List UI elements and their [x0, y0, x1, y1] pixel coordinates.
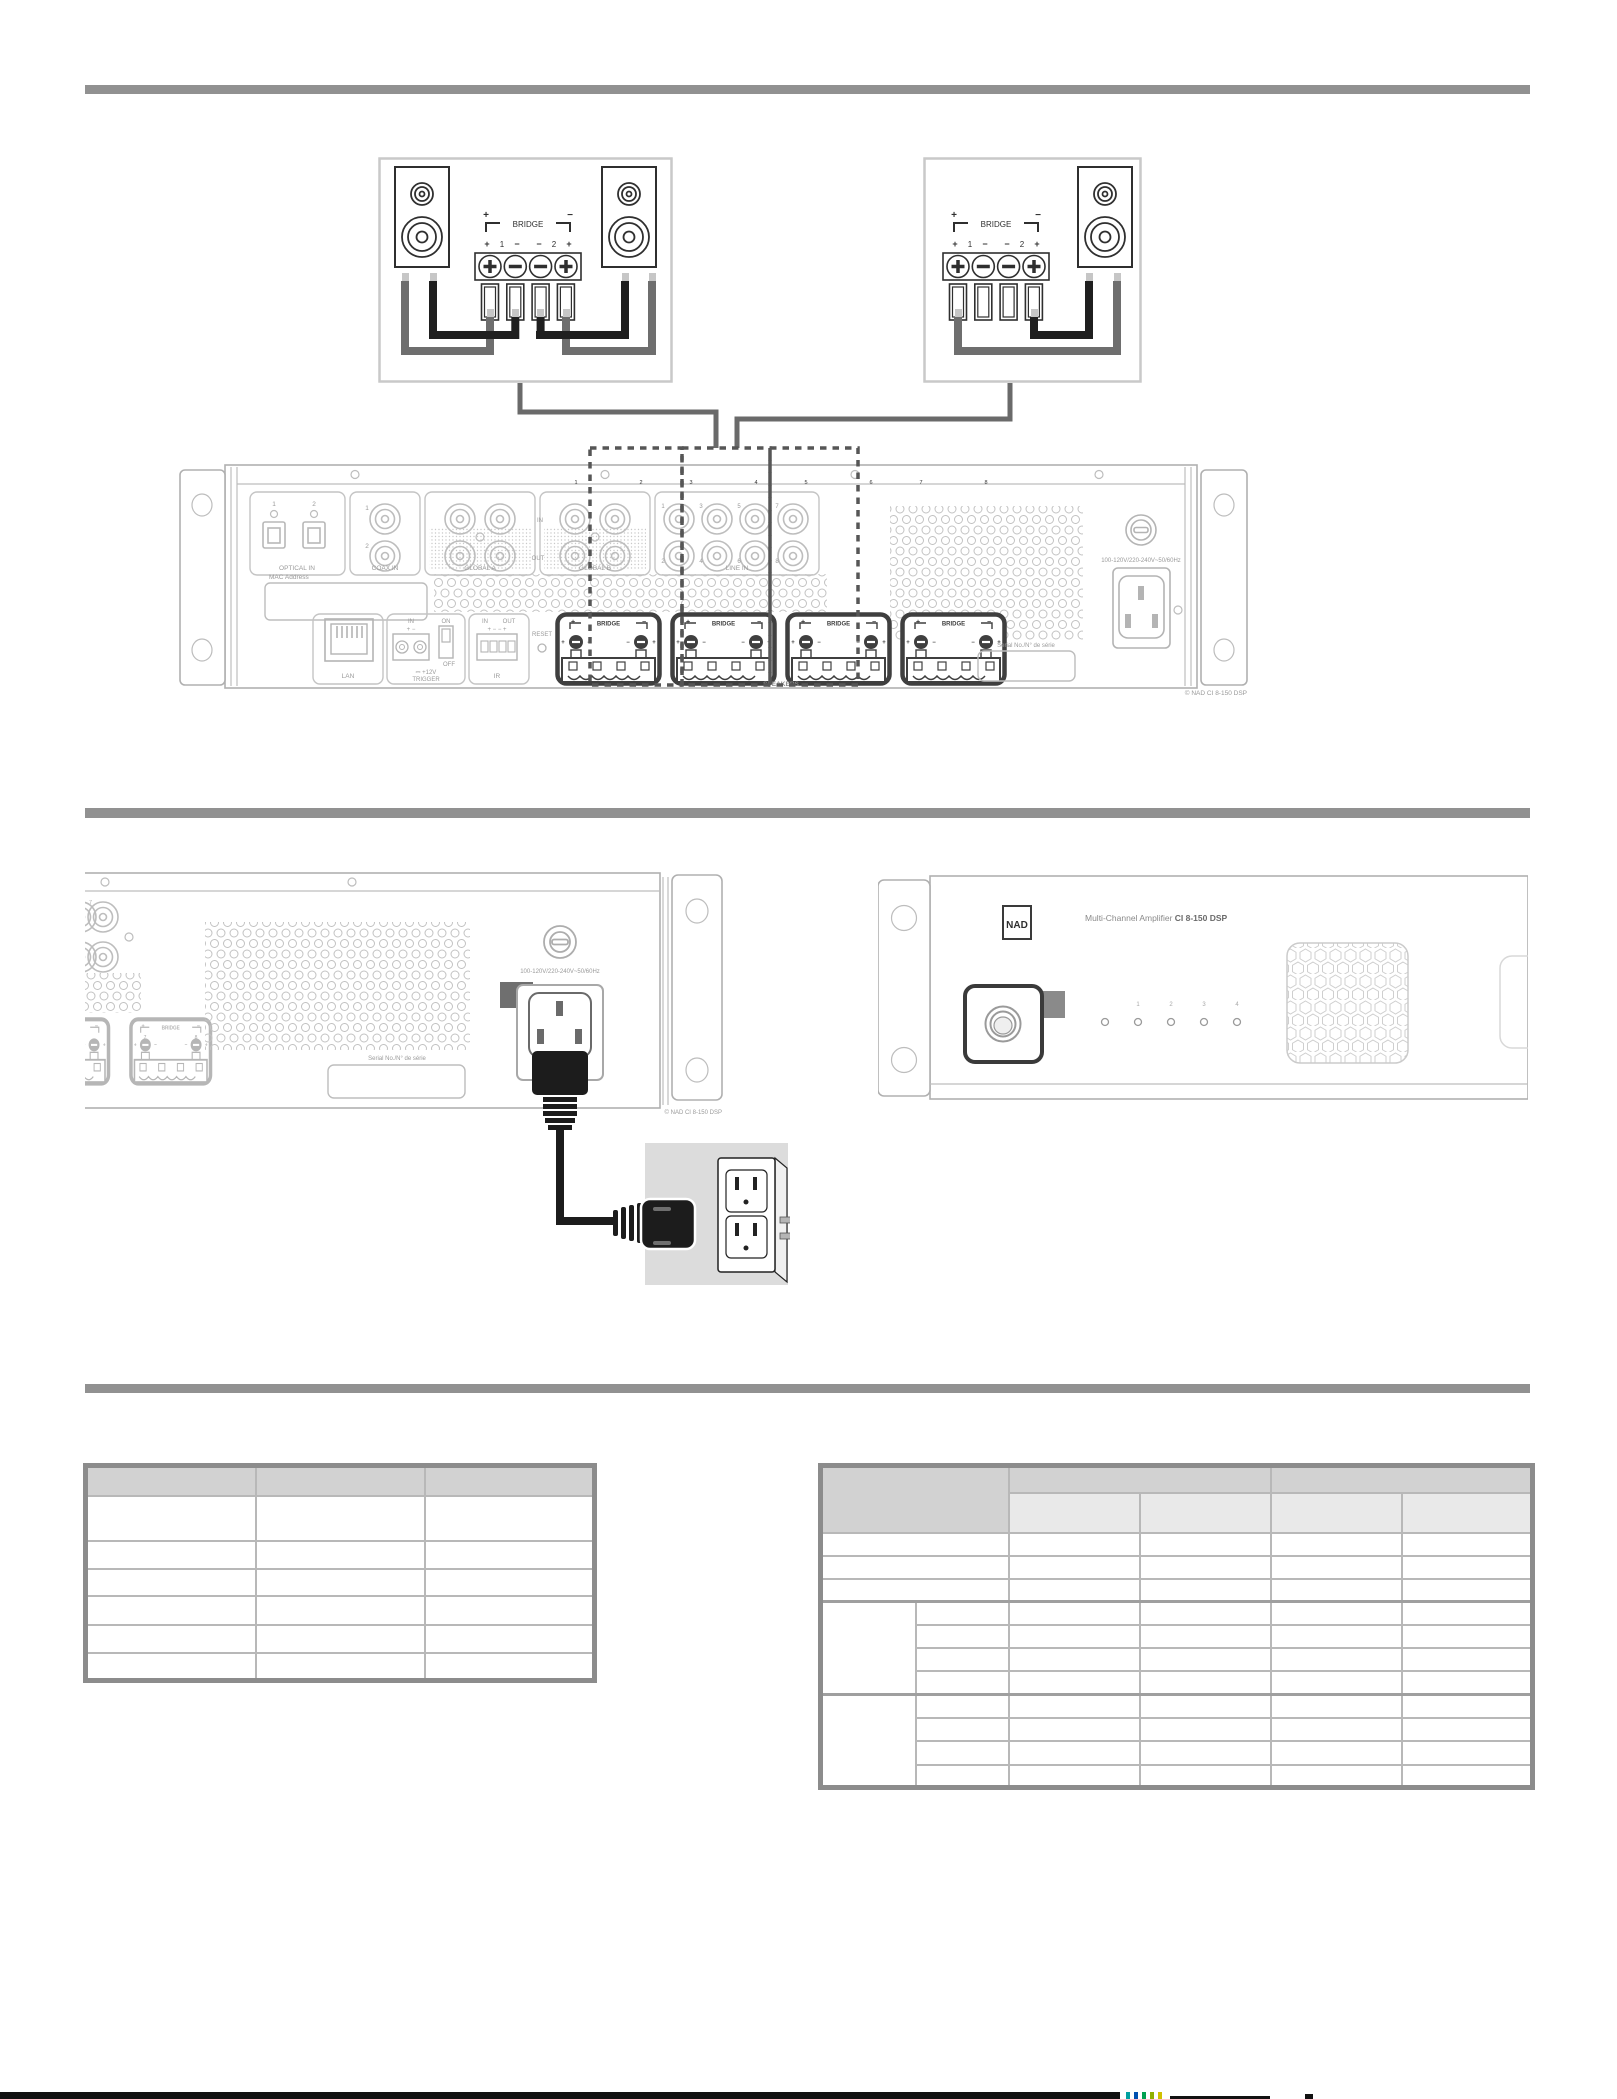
- empty-cell: [916, 1765, 1009, 1788]
- lan-label: LAN: [342, 673, 355, 680]
- power-plug-body: [532, 1051, 588, 1095]
- empty-cell: [1009, 1579, 1140, 1602]
- optical-1-label: 1: [272, 501, 276, 508]
- empty-cell: [1009, 1602, 1140, 1625]
- empty-cell: [916, 1671, 1009, 1695]
- speaker-icon: [602, 167, 656, 267]
- empty-cell: [1271, 1579, 1402, 1602]
- section-divider-bar: [85, 85, 1530, 94]
- empty-cell: [1271, 1466, 1533, 1493]
- empty-cell: [425, 1496, 595, 1541]
- empty-cell: [1271, 1602, 1402, 1625]
- bridge-panel-one-speaker: [923, 157, 1142, 383]
- empty-cell: [86, 1541, 256, 1569]
- power-cord: [556, 1128, 564, 1223]
- manual-page: + − BRIDGE + 1 − − 2 + + −: [0, 0, 1617, 2099]
- empty-cell: [1402, 1556, 1533, 1579]
- print-registration-mark: [1126, 2092, 1130, 2099]
- channel-number: 7: [144, 1035, 147, 1041]
- empty-cell: [1009, 1648, 1140, 1671]
- empty-cell: [86, 1625, 256, 1653]
- empty-cell: [1140, 1765, 1271, 1788]
- bridge-connection-overlay: [440, 375, 1160, 690]
- empty-cell: [1009, 1556, 1140, 1579]
- empty-cell: [916, 1695, 1009, 1718]
- empty-cell: [1140, 1625, 1271, 1648]
- empty-cell: [1140, 1718, 1271, 1741]
- empty-cell: [916, 1602, 1009, 1625]
- section-divider-bar: [85, 808, 1530, 818]
- empty-cell: [1140, 1493, 1271, 1533]
- trigger-in-label: IN: [408, 619, 414, 625]
- empty-cell: [821, 1602, 916, 1695]
- empty-cell: [1140, 1648, 1271, 1671]
- print-registration-mark: [1305, 2094, 1313, 2099]
- empty-cell: [1009, 1493, 1140, 1533]
- empty-cell: [1140, 1602, 1271, 1625]
- empty-cell: [1140, 1741, 1271, 1765]
- empty-cell: [1402, 1671, 1533, 1695]
- trigger-label-2: TRIGGER: [412, 677, 440, 683]
- empty-cell: [86, 1496, 256, 1541]
- coax-2-label: 2: [365, 543, 369, 550]
- empty-cell: [1402, 1579, 1533, 1602]
- empty-cell: [86, 1569, 256, 1596]
- wall-outlet: [613, 1143, 790, 1285]
- nad-logo-text: NAD: [1006, 920, 1028, 931]
- empty-cell: [425, 1596, 595, 1625]
- empty-cell: [916, 1648, 1009, 1671]
- trigger-label-1: ⎓ +12V: [416, 670, 437, 676]
- empty-cell: [1402, 1493, 1533, 1533]
- empty-cell: [1009, 1671, 1140, 1695]
- empty-cell: [1140, 1695, 1271, 1718]
- front-panel-diagram: NAD Multi-Channel Amplifier CI 8-150 DSP…: [878, 870, 1528, 1105]
- connection-wire-left: [520, 383, 716, 448]
- empty-cell: [1009, 1695, 1140, 1718]
- copyright-text: © NAD CI 8-150 DSP: [1185, 689, 1247, 697]
- print-registration-mark: [1158, 2092, 1162, 2099]
- power-cord: [556, 1217, 616, 1225]
- empty-cell: [1140, 1671, 1271, 1695]
- spec-table-left: [83, 1463, 597, 1683]
- empty-cell: [1271, 1493, 1402, 1533]
- empty-cell: [916, 1718, 1009, 1741]
- empty-cell: [916, 1625, 1009, 1648]
- empty-cell: [1271, 1556, 1402, 1579]
- speaker-icon: [395, 167, 449, 267]
- empty-cell: [1009, 1765, 1140, 1788]
- empty-cell: [256, 1596, 425, 1625]
- bridge-panel-two-speakers: [378, 157, 673, 383]
- empty-cell: [916, 1741, 1009, 1765]
- empty-cell: [86, 1653, 256, 1681]
- empty-cell: [1009, 1718, 1140, 1741]
- highlight-dashed-boxes: [590, 448, 858, 685]
- empty-cell: [1271, 1671, 1402, 1695]
- print-registration-mark: [1150, 2092, 1154, 2099]
- empty-cell: [256, 1653, 425, 1681]
- empty-cell: [1402, 1695, 1533, 1718]
- empty-cell: [256, 1625, 425, 1653]
- speaker-grille: [1287, 943, 1408, 1063]
- empty-cell: [821, 1533, 1009, 1556]
- empty-cell: [821, 1556, 1009, 1579]
- coax-in-label: COAX IN: [372, 565, 399, 572]
- spec-table-right: [818, 1463, 1535, 1790]
- empty-cell: [1271, 1741, 1402, 1765]
- empty-cell: [256, 1496, 425, 1541]
- empty-cell: [86, 1466, 256, 1496]
- empty-cell: [1140, 1533, 1271, 1556]
- vent-holes: [85, 973, 141, 1013]
- empty-cell: [256, 1466, 425, 1496]
- print-edge-bar: [0, 2092, 1120, 2099]
- empty-cell: [1009, 1466, 1271, 1493]
- power-connection-diagram: 7 7 8 Serial No./N° de série 100-120V/22…: [85, 865, 790, 1295]
- optical-2-label: 2: [312, 501, 316, 508]
- vent-holes: [205, 922, 470, 1050]
- empty-cell: [1271, 1625, 1402, 1648]
- optical-in-label: OPTICAL IN: [279, 565, 315, 572]
- empty-cell: [1009, 1625, 1140, 1648]
- section-divider-bar: [85, 1384, 1530, 1393]
- empty-cell: [1271, 1533, 1402, 1556]
- empty-cell: [425, 1625, 595, 1653]
- speaker-icon: [1078, 167, 1132, 267]
- empty-cell: [1402, 1741, 1533, 1765]
- print-registration-mark: [1142, 2092, 1146, 2099]
- empty-cell: [1402, 1625, 1533, 1648]
- outlet-socket: [726, 1216, 767, 1258]
- empty-cell: [821, 1466, 1009, 1533]
- empty-cell: [821, 1695, 916, 1788]
- serial-label: Serial No./N° de série: [368, 1056, 426, 1062]
- connection-wire-right: [737, 383, 1010, 448]
- empty-cell: [1140, 1556, 1271, 1579]
- copyright-text: © NAD CI 8-150 DSP: [665, 1109, 722, 1116]
- coax-1-label: 1: [365, 505, 369, 512]
- empty-cell: [256, 1569, 425, 1596]
- front-model-text: CI 8-150 DSP: [1175, 913, 1228, 923]
- print-registration-mark: [1134, 2092, 1138, 2099]
- empty-cell: [425, 1541, 595, 1569]
- empty-cell: [1402, 1533, 1533, 1556]
- empty-cell: [821, 1579, 1009, 1602]
- outlet-socket: [726, 1170, 767, 1212]
- front-title: Multi-Channel Amplifier CI 8-150 DSP: [1085, 913, 1228, 923]
- empty-cell: [1271, 1765, 1402, 1788]
- empty-cell: [1402, 1602, 1533, 1625]
- empty-cell: [1271, 1648, 1402, 1671]
- empty-cell: [425, 1569, 595, 1596]
- empty-cell: [1271, 1718, 1402, 1741]
- empty-cell: [1140, 1579, 1271, 1602]
- empty-cell: [1009, 1741, 1140, 1765]
- empty-cell: [1271, 1695, 1402, 1718]
- channel-number: 8: [195, 1035, 198, 1041]
- empty-cell: [1402, 1718, 1533, 1741]
- front-title-text: Multi-Channel Amplifier: [1085, 913, 1175, 923]
- empty-cell: [86, 1596, 256, 1625]
- empty-cell: [1402, 1765, 1533, 1788]
- empty-cell: [1009, 1533, 1140, 1556]
- empty-cell: [1402, 1648, 1533, 1671]
- mac-address-label: MAC Address: [269, 574, 309, 581]
- voltage-label: 100-120V/220-240V~50/60Hz: [520, 969, 600, 975]
- empty-cell: [425, 1653, 595, 1681]
- empty-cell: [256, 1541, 425, 1569]
- empty-cell: [425, 1466, 595, 1496]
- trigger-pm-label: + −: [407, 627, 416, 633]
